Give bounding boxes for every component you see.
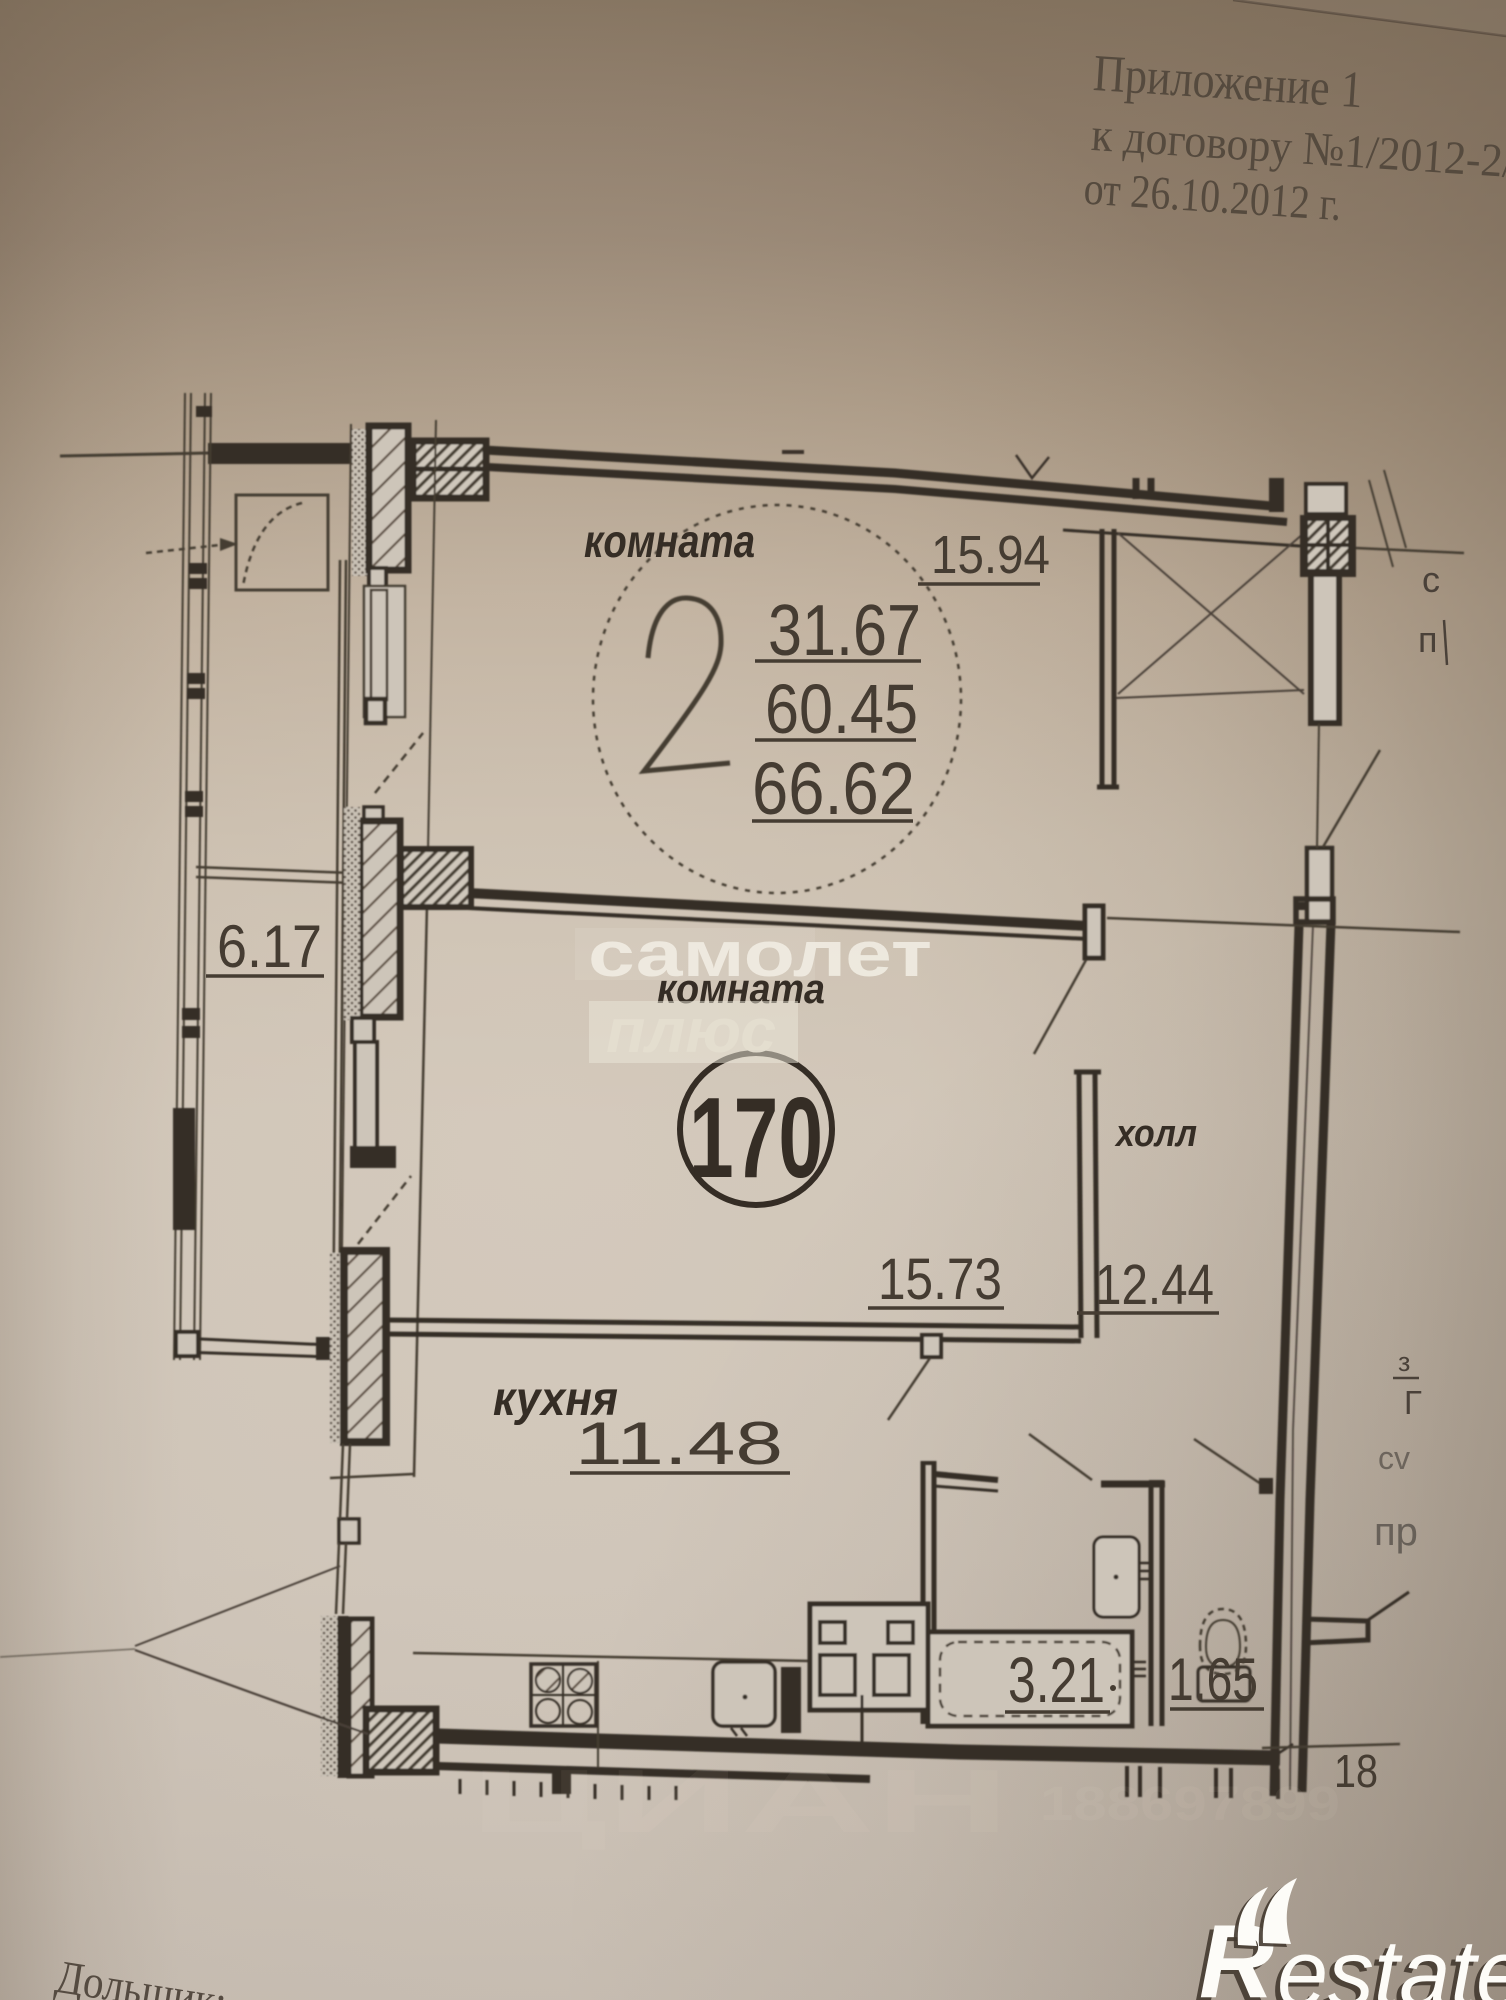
svg-text:11.48: 11.48: [575, 1410, 783, 1477]
svg-text:1.65: 1.65: [1168, 1646, 1258, 1713]
svg-text:холл: холл: [1114, 1113, 1197, 1155]
svg-text:66.62: 66.62: [752, 747, 915, 830]
svg-text:плюс: плюс: [606, 997, 776, 1066]
svg-text:с: с: [1422, 559, 1440, 600]
svg-text:пр: пр: [1374, 1510, 1418, 1554]
svg-text:сv: сv: [1378, 1440, 1410, 1476]
svg-text:3.21: 3.21: [1008, 1644, 1105, 1716]
svg-text:з: з: [1398, 1347, 1410, 1377]
svg-text:самолет: самолет: [588, 918, 932, 990]
svg-text:170: 170: [689, 1075, 823, 1202]
svg-text:ЦИАН: ЦИАН: [470, 1752, 1010, 1852]
svg-text:15.73: 15.73: [878, 1247, 1002, 1312]
svg-text:31.67: 31.67: [768, 591, 921, 671]
svg-text:п: п: [1418, 619, 1438, 660]
svg-text:12.44: 12.44: [1095, 1253, 1214, 1317]
svg-text:комната: комната: [584, 515, 755, 567]
svg-text:15.94: 15.94: [931, 525, 1050, 585]
svg-text:estate: estate: [1277, 1920, 1506, 2000]
svg-text:60.45: 60.45: [765, 670, 918, 748]
svg-text:188697899: 188697899: [1040, 1778, 1340, 1831]
svg-text:18: 18: [1334, 1745, 1378, 1797]
svg-text:6.17: 6.17: [217, 913, 322, 980]
svg-text:Г: Г: [1404, 1384, 1422, 1421]
